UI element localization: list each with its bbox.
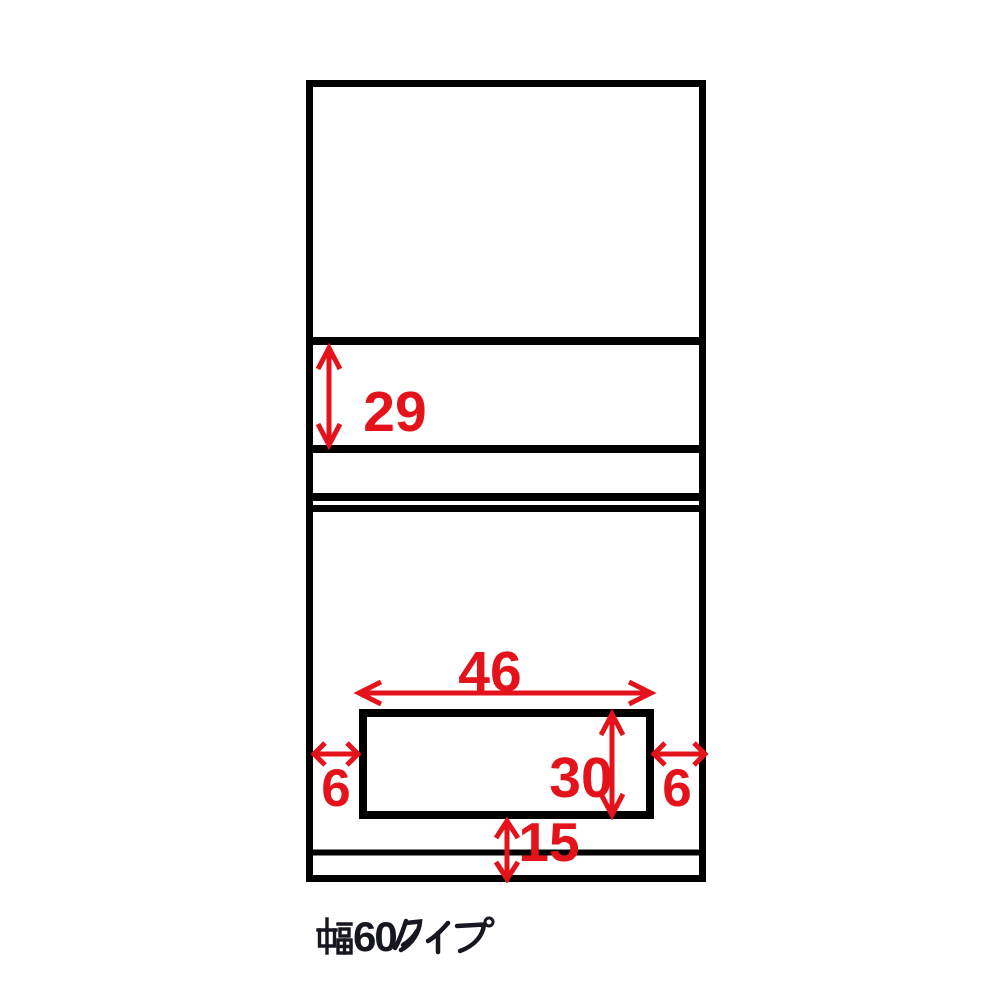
- svg-text:46: 46: [458, 640, 521, 704]
- svg-text:30: 30: [549, 746, 612, 810]
- svg-text:6: 6: [321, 759, 350, 818]
- svg-text:60: 60: [353, 913, 396, 960]
- svg-text:15: 15: [518, 811, 579, 873]
- svg-text:6: 6: [662, 759, 691, 818]
- svg-text:29: 29: [363, 380, 426, 444]
